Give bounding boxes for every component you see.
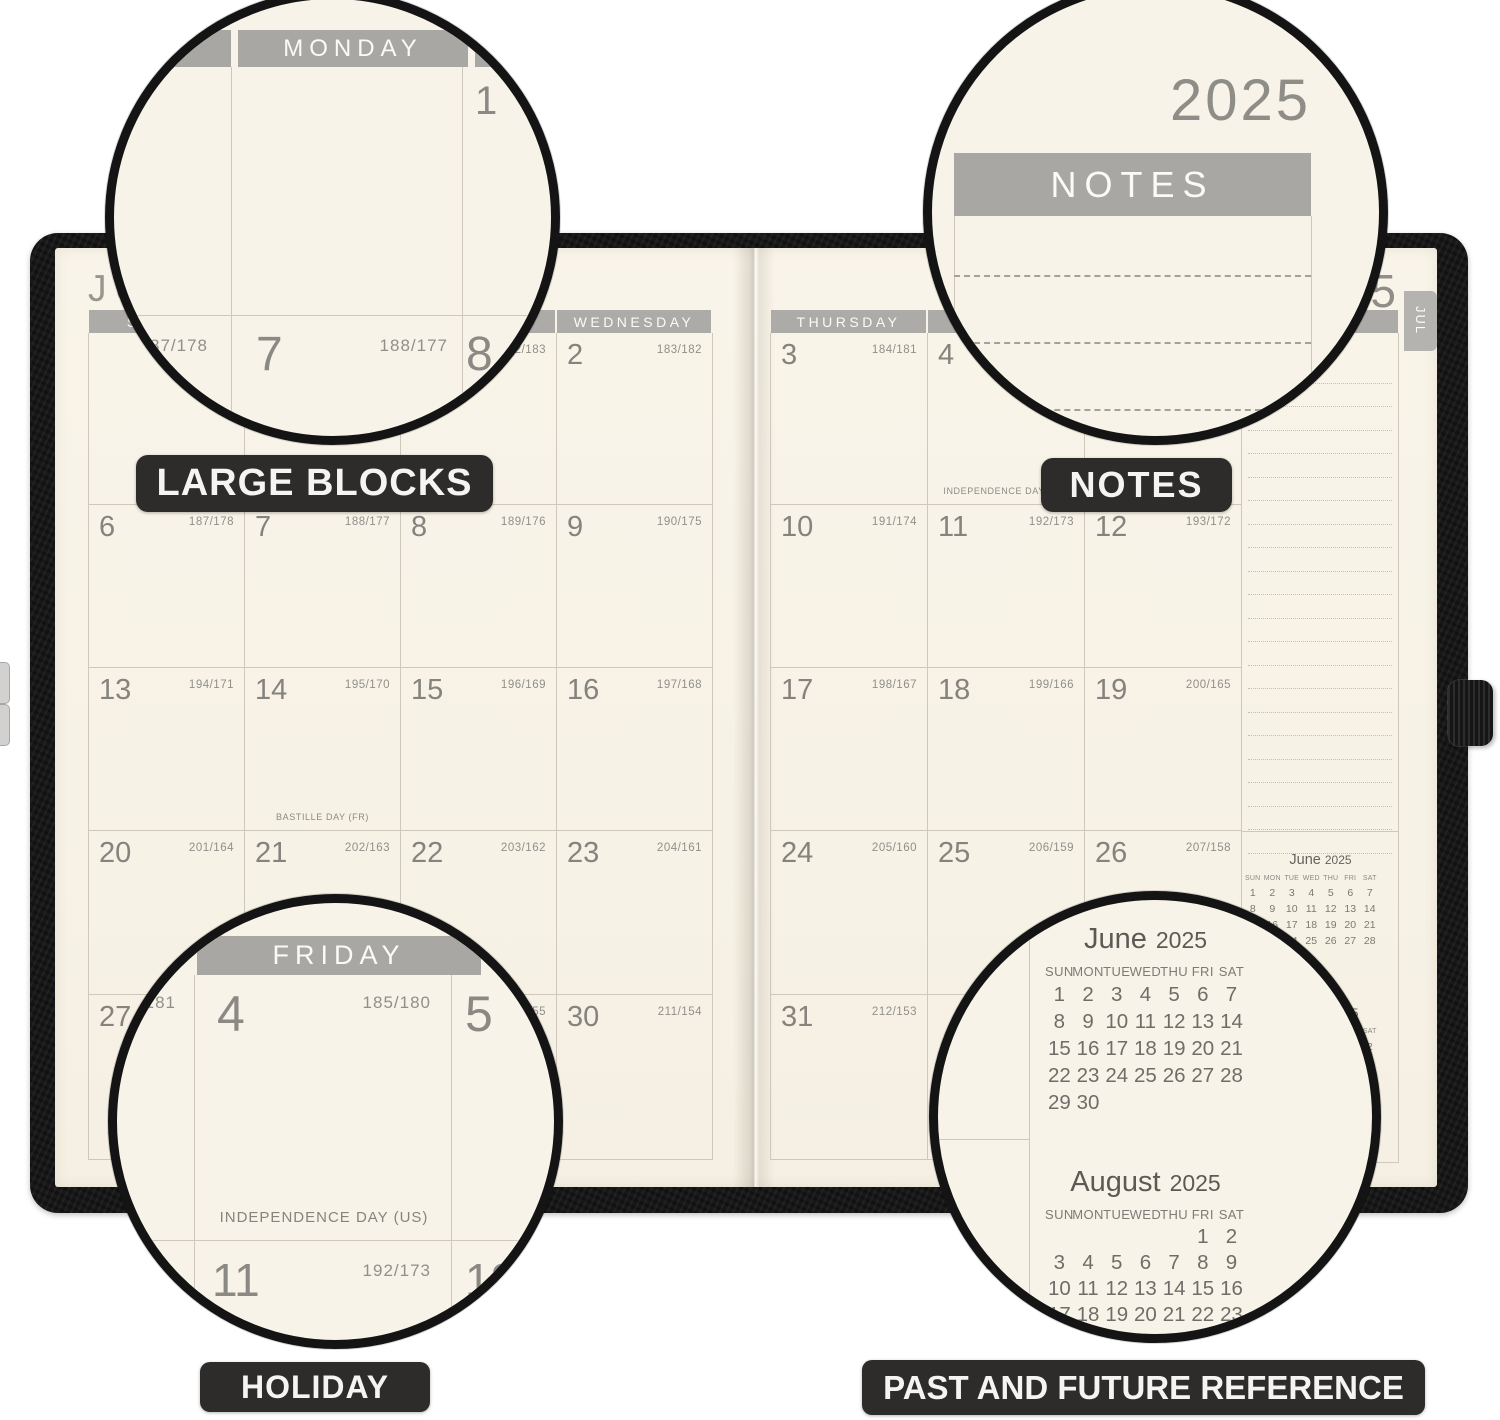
date-number: 10 xyxy=(781,511,813,544)
left-edge-loop-bottom xyxy=(0,704,10,746)
callout-reference: PAST AND FUTURE REFERENCE xyxy=(862,1360,1425,1415)
date-number: 18 xyxy=(938,674,970,707)
day-of-year: 193/172 xyxy=(1186,516,1231,528)
zoom-holiday-label: INDEPENDENCE DAY (US) xyxy=(174,1209,474,1226)
day-of-year: 212/153 xyxy=(872,1006,917,1018)
date-number: 9 xyxy=(567,511,583,544)
day-of-year: 200/165 xyxy=(1186,679,1231,691)
date-number: 12 xyxy=(1095,511,1127,544)
day-cell: 23204/161 xyxy=(557,831,713,995)
date-number: 19 xyxy=(1095,674,1127,707)
day-of-year: 192/173 xyxy=(1029,516,1074,528)
date-number: 30 xyxy=(567,1001,599,1034)
magnifier-reference: June2025 SUNMONTUEWEDTHUFRISAT 123456789… xyxy=(929,891,1381,1343)
zoom-notes-bar: NOTES xyxy=(954,153,1311,216)
day-of-year: 207/158 xyxy=(1186,842,1231,854)
zoom-date: 8 xyxy=(466,327,493,382)
date-number: 3 xyxy=(781,339,797,372)
notes-column-divider-line xyxy=(1241,831,1399,832)
day-of-year: 198/167 xyxy=(872,679,917,691)
month-tab: JUL xyxy=(1404,291,1437,351)
day-cell: 30211/154 xyxy=(557,995,713,1160)
day-cell: 14195/170BASTILLE DAY (FR) xyxy=(245,668,401,831)
zoom-gridline xyxy=(451,975,452,1340)
day-header-wednesday: WEDNESDAY xyxy=(557,310,711,333)
day-of-year: 211/154 xyxy=(658,1006,702,1018)
day-cell: 2183/182 xyxy=(557,333,713,505)
zoom-doy: 187/178 xyxy=(114,336,208,356)
day-of-year: 196/169 xyxy=(501,679,546,691)
day-cell: 19200/165 xyxy=(1085,668,1242,831)
callout-notes: NOTES xyxy=(1041,458,1232,512)
mini-june-dow: SUNMONTUEWEDTHUFRISAT xyxy=(1243,875,1398,882)
zoom-mini-june-dates: 1234567891011121314151617181920212223242… xyxy=(1045,981,1246,1116)
day-of-year: 194/171 xyxy=(189,679,234,691)
day-cell: 6187/178 xyxy=(89,505,245,668)
zoom-mini-august-title: August2025 xyxy=(1045,1166,1246,1199)
day-of-year: 184/181 xyxy=(872,344,917,356)
magnifier-notes: 2025 NOTES xyxy=(923,0,1388,445)
day-of-year: 183/182 xyxy=(657,344,702,356)
day-cell: 8189/176 xyxy=(401,505,557,668)
date-number: 6 xyxy=(99,511,115,544)
date-number: 24 xyxy=(781,837,813,870)
zoom-rowline xyxy=(114,315,551,316)
magnifier-large-blocks: MONDAY 1 187/178 7 188/177 8 xyxy=(105,0,560,445)
day-cell: 24205/160 xyxy=(771,831,928,995)
zoom-mini-august-dow: SUNMONTUEWEDTHUFRISAT xyxy=(1045,1207,1246,1222)
day-cell: 11192/173 xyxy=(928,505,1085,668)
date-number: 21 xyxy=(255,837,287,870)
zoom-mini-august: August2025 SUNMONTUEWEDTHUFRISAT 1234567… xyxy=(1045,1166,1246,1328)
day-of-year: 188/177 xyxy=(345,516,390,528)
day-cell: 9190/175 xyxy=(557,505,713,668)
zoom-year: 2025 xyxy=(1032,67,1311,134)
date-number: 11 xyxy=(938,511,968,544)
date-number: 13 xyxy=(99,674,131,707)
day-cell: 31212/153 xyxy=(771,995,928,1160)
notes-lines xyxy=(1248,360,1392,854)
date-number: 15 xyxy=(411,674,443,707)
day-cell: 18199/166 xyxy=(928,668,1085,831)
zoom-gridline xyxy=(231,67,232,436)
day-cell: 12193/172 xyxy=(1085,505,1242,668)
day-of-year: 195/170 xyxy=(345,679,390,691)
date-number: 20 xyxy=(99,837,131,870)
day-cell: 7188/177 xyxy=(245,505,401,668)
day-cell: 3184/181 xyxy=(771,333,928,505)
zoom-date: 7 xyxy=(256,327,283,382)
callout-large-blocks: LARGE BLOCKS xyxy=(136,455,493,512)
zoom-doy: 192/173 xyxy=(277,1261,431,1281)
zoom-friday-bar: FRIDAY xyxy=(197,936,481,975)
date-number: 23 xyxy=(567,837,599,870)
holiday-label: BASTILLE DAY (FR) xyxy=(245,812,400,822)
date-number: 31 xyxy=(781,1001,813,1034)
day-of-year: 189/176 xyxy=(501,516,546,528)
zoom-doy: 184/181 xyxy=(108,993,176,1013)
zoom-tuesday-bar-fragment xyxy=(475,30,560,67)
left-edge-loop-top xyxy=(0,662,10,704)
zoom-sunday-bar-fragment xyxy=(105,30,231,67)
zoom-mini-august-dates: 1234567891011121314151617181920212223242… xyxy=(1045,1224,1246,1328)
day-of-year: 206/159 xyxy=(1029,842,1074,854)
zoom-date: 1 xyxy=(475,79,497,124)
date-number: 14 xyxy=(255,674,287,707)
magnifier-holiday: FRIDAY 184/181 4 185/180 5 INDEPENDENCE … xyxy=(108,894,563,1349)
day-of-year: 190/175 xyxy=(657,516,702,528)
zoom-gridline xyxy=(462,67,463,436)
zoom-mini-june-title: June2025 xyxy=(1045,923,1246,956)
day-of-year: 202/163 xyxy=(345,842,390,854)
zoom-mini-june-dow: SUNMONTUEWEDTHUFRISAT xyxy=(1045,964,1246,979)
zoom-notes-line xyxy=(954,342,1311,344)
mini-june-title: June2025 xyxy=(1243,851,1398,869)
zoom-date: 4 xyxy=(217,985,245,1043)
day-header-thursday: THURSDAY xyxy=(771,310,926,333)
zoom-monday-bar: MONDAY xyxy=(238,30,468,67)
date-number: 7 xyxy=(255,511,271,544)
pen-loop xyxy=(1448,680,1493,746)
zoom-mini-june: June2025 SUNMONTUEWEDTHUFRISAT 123456789… xyxy=(1045,923,1246,1116)
day-of-year: 205/160 xyxy=(872,842,917,854)
zoom-gridline xyxy=(194,975,195,1340)
callout-holiday: HOLIDAY xyxy=(200,1362,430,1412)
zoom-notes-line xyxy=(954,409,1311,411)
zoom-gridline xyxy=(1029,900,1030,1334)
zoom-notes-line xyxy=(954,275,1311,277)
date-number: 22 xyxy=(411,837,443,870)
date-number: 25 xyxy=(938,837,970,870)
date-number: 8 xyxy=(411,511,427,544)
day-cell: 10191/174 xyxy=(771,505,928,668)
date-number: 16 xyxy=(567,674,599,707)
date-number: 26 xyxy=(1095,837,1127,870)
notes-column-right-line xyxy=(1398,333,1399,1162)
zoom-doy: 188/177 xyxy=(294,336,448,356)
date-number: 17 xyxy=(781,674,813,707)
day-of-year: 201/164 xyxy=(189,842,234,854)
date-number: 2 xyxy=(567,339,583,372)
date-number: 4 xyxy=(938,339,954,372)
day-cell: 13194/171 xyxy=(89,668,245,831)
zoom-rowline xyxy=(938,1139,1029,1140)
day-cell: 15196/169 xyxy=(401,668,557,831)
day-of-year: 199/166 xyxy=(1029,679,1074,691)
zoom-date: 5 xyxy=(465,985,493,1043)
page-fold-shadow xyxy=(733,248,775,1187)
zoom-doy: 185/180 xyxy=(277,993,431,1013)
zoom-date: 11 xyxy=(212,1253,260,1307)
zoom-gridline xyxy=(1311,216,1312,445)
day-of-year: 191/174 xyxy=(872,516,917,528)
zoom-date: 12 xyxy=(465,1253,516,1307)
day-cell: 17198/167 xyxy=(771,668,928,831)
zoom-rowline xyxy=(117,1240,554,1241)
day-of-year: 203/162 xyxy=(501,842,546,854)
day-of-year: 187/178 xyxy=(189,516,234,528)
day-of-year: 204/161 xyxy=(657,842,702,854)
day-cell: 16197/168 xyxy=(557,668,713,831)
day-of-year: 197/168 xyxy=(657,679,702,691)
